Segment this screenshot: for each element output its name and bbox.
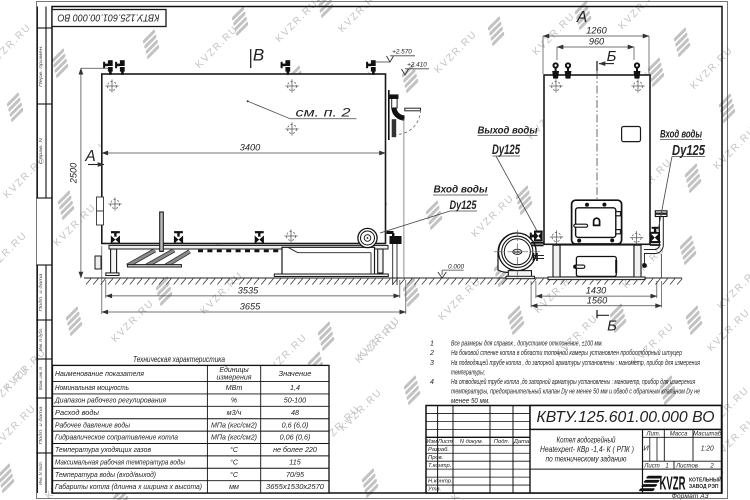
svg-text:2500: 2500	[69, 162, 79, 184]
svg-text:Масштаб: Масштаб	[693, 431, 722, 437]
svg-text:Dy125: Dy125	[492, 142, 520, 157]
svg-text:Техническая характеристика: Техническая характеристика	[133, 355, 225, 364]
svg-text:Все размеры для справок , допу: Все размеры для справок , допустимое отк…	[451, 340, 603, 348]
svg-text:Лист: Лист	[437, 439, 453, 445]
svg-text:°С: °С	[230, 470, 239, 479]
svg-text:Рабочее давление воды: Рабочее давление воды	[55, 420, 131, 429]
svg-text:Утв.: Утв.	[427, 487, 441, 493]
svg-text:температуры;: температуры;	[451, 369, 485, 376]
svg-text:3400: 3400	[240, 143, 261, 153]
svg-text:Номинальная мощность: Номинальная мощность	[55, 383, 129, 392]
svg-text:Дата: Дата	[513, 439, 530, 445]
svg-text:Разраб.: Разраб.	[428, 447, 449, 453]
svg-text:На боковой стенке котла в обла: На боковой стенке котла в области топочн…	[451, 349, 682, 357]
svg-text:Инв. N дубл.: Инв. N дубл.	[38, 328, 44, 351]
svg-text:А: А	[84, 148, 95, 165]
svg-text:3655: 3655	[240, 302, 261, 312]
svg-text:Справ. N: Справ. N	[38, 137, 44, 164]
svg-text:см. п. 2: см. п. 2	[296, 108, 352, 120]
svg-text:по техническому заданию: по техническому заданию	[546, 455, 627, 464]
svg-text:МПа (кгс/см2): МПа (кгс/см2)	[211, 433, 257, 442]
svg-text:мм: мм	[229, 482, 239, 491]
svg-text:1560: 1560	[587, 295, 608, 305]
svg-text:Максимальная рабочая температу: Максимальная рабочая температура воды	[55, 457, 186, 466]
svg-text:Диапазон рабочего регулировани: Диапазон рабочего регулирования	[54, 396, 166, 405]
svg-text:Взам. инв. N: Взам. инв. N	[38, 367, 44, 390]
svg-text:Масса: Масса	[670, 431, 688, 437]
svg-text:Единицы: Единицы	[219, 366, 249, 374]
svg-text:Котел водогрейный: Котел водогрейный	[557, 436, 616, 445]
svg-text:Гидравлическое сопративление к: Гидравлическое сопративление котла	[55, 433, 178, 442]
svg-text:Габариты котла (длинна х ширин: Габариты котла (длинна х ширина х высота…	[55, 482, 202, 491]
svg-text:Наименование показателя: Наименование показателя	[55, 369, 144, 378]
svg-text:Подп.: Подп.	[494, 439, 509, 445]
svg-text:Н.контр.: Н.контр.	[428, 479, 453, 485]
svg-text:Б: Б	[607, 318, 617, 335]
svg-text:Лит.: Лит.	[645, 431, 660, 437]
svg-text:В: В	[253, 46, 264, 65]
svg-text:3535: 3535	[238, 285, 259, 295]
svg-text:Пров.: Пров.	[428, 455, 443, 461]
svg-text:70/95: 70/95	[286, 470, 305, 479]
svg-text:Листов: Листов	[675, 463, 698, 469]
svg-text:Подп. и дата: Подп. и дата	[38, 273, 44, 311]
svg-text:0,06 (0,6): 0,06 (0,6)	[280, 433, 311, 442]
svg-text:На подводящей трубе котла ,: На подводящей трубе котла , до запорной …	[451, 359, 700, 367]
svg-text:КВТУ.125.601.00.000 ВО: КВТУ.125.601.00.000 ВО	[537, 409, 715, 426]
svg-text:Вход воды: Вход воды	[434, 184, 488, 196]
svg-text:Лист: Лист	[643, 463, 659, 469]
svg-text:температуры, предохранительный: температуры, предохранительный клапан Dу…	[451, 388, 700, 396]
svg-text:Т.контр.: Т.контр.	[428, 463, 451, 469]
svg-text:Выход воды: Выход воды	[478, 125, 538, 137]
svg-text:1: 1	[665, 463, 668, 469]
svg-text:3: 3	[430, 360, 434, 367]
svg-text:Dy125: Dy125	[450, 200, 477, 212]
svg-text:3655х1530х2570: 3655х1530х2570	[266, 482, 324, 491]
svg-text:измерения: измерения	[216, 375, 251, 382]
svg-text:м3/ч: м3/ч	[227, 408, 242, 417]
svg-text:+2.410: +2.410	[407, 62, 427, 69]
svg-text:Температура уходящих газов: Температура уходящих газов	[55, 445, 151, 454]
svg-text:960: 960	[589, 37, 605, 47]
svg-text:МПа (кгс/см2): МПа (кгс/см2)	[211, 420, 257, 429]
svg-text:0.000: 0.000	[448, 263, 464, 270]
svg-text:Изм: Изм	[426, 439, 437, 445]
svg-text:Инв. N подл.: Инв. N подл.	[38, 461, 44, 485]
svg-text:менее 50 мм.: менее 50 мм.	[451, 398, 490, 405]
svg-text:1,4: 1,4	[290, 383, 300, 392]
svg-text:°С: °С	[230, 457, 239, 466]
svg-text:4: 4	[430, 379, 434, 386]
svg-text:2: 2	[429, 350, 434, 357]
svg-text:0,6 (6,0): 0,6 (6,0)	[282, 420, 309, 429]
svg-text:КОТЕЛЬНЫЙ: КОТЕЛЬНЫЙ	[689, 476, 722, 484]
svg-text:КВТУ.125.601.00.000 ВО: КВТУ.125.601.00.000 ВО	[57, 12, 159, 23]
svg-text:1: 1	[430, 341, 434, 348]
svg-text:не более 220: не более 220	[273, 445, 317, 454]
svg-text:KVZR: KVZR	[660, 474, 686, 494]
svg-text:Подп. и дата: Подп. и дата	[38, 406, 44, 444]
svg-text:Формат А3: Формат А3	[672, 493, 709, 500]
svg-text:Б: Б	[607, 48, 617, 65]
svg-text:Перв. примен.: Перв. примен.	[38, 45, 44, 87]
svg-text:1260: 1260	[586, 26, 607, 36]
svg-text:%: %	[231, 396, 238, 405]
svg-text:И: И	[643, 444, 649, 453]
svg-text:ЗАВОД РЭП: ЗАВОД РЭП	[689, 484, 719, 490]
svg-text:А: А	[576, 9, 587, 26]
svg-text:+2.570: +2.570	[392, 49, 412, 56]
svg-text:50-100: 50-100	[284, 396, 306, 405]
svg-text:115: 115	[289, 457, 301, 466]
svg-text:2: 2	[709, 463, 714, 469]
svg-text:Вход воды: Вход воды	[660, 129, 702, 141]
svg-text:1:20: 1:20	[701, 444, 715, 453]
svg-text:Температура воды (вход/выход): Температура воды (вход/выход)	[55, 470, 156, 479]
svg-text:48: 48	[291, 408, 299, 417]
svg-text:1430: 1430	[586, 286, 607, 296]
svg-text:N докум.: N докум.	[460, 439, 483, 445]
svg-text:°С: °С	[230, 445, 239, 454]
svg-text:Heatexpert- КВр -1,4- К ( РПК: Heatexpert- КВр -1,4- К ( РПК )	[540, 445, 634, 454]
svg-text:Расход воды: Расход воды	[55, 408, 100, 417]
svg-text:МВт: МВт	[226, 383, 243, 392]
svg-text:На отводящей трубе котла ,до з: На отводящей трубе котла ,до запорной ар…	[451, 378, 695, 386]
svg-text:Значение: Значение	[279, 369, 312, 378]
